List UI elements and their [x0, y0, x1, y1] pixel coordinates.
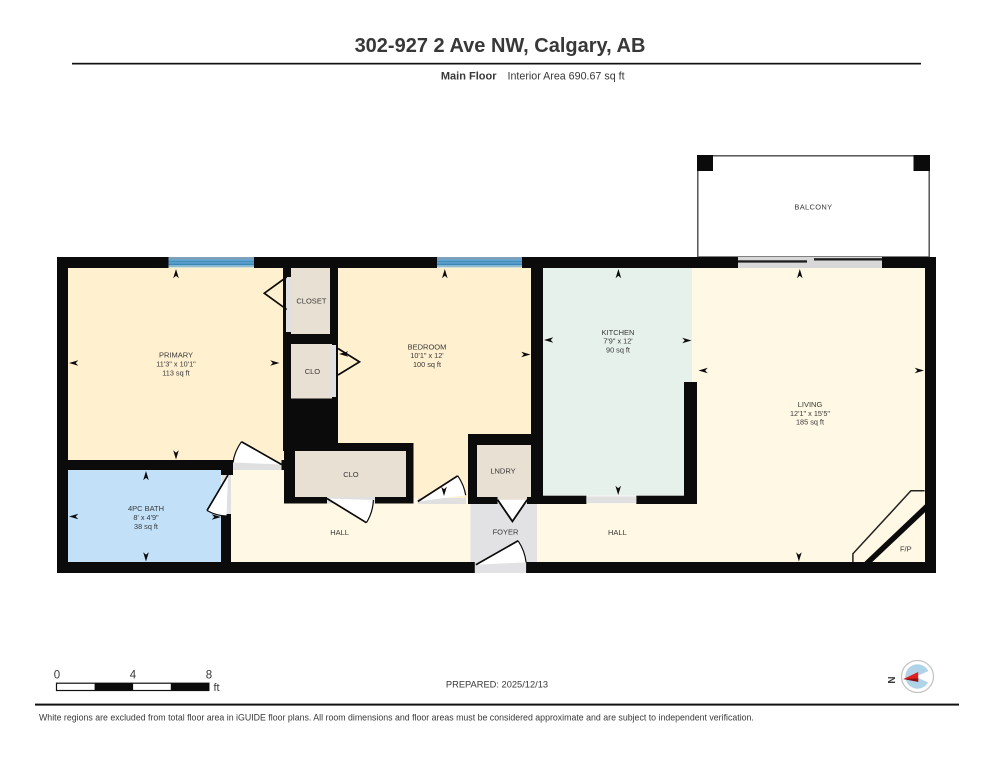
svg-text:PRIMARY: PRIMARY: [159, 351, 193, 360]
svg-text:10'1" x 12': 10'1" x 12': [410, 351, 444, 360]
svg-text:302-927 2 Ave NW, Calgary, AB: 302-927 2 Ave NW, Calgary, AB: [355, 35, 646, 57]
svg-text:N: N: [887, 676, 898, 683]
svg-text:0: 0: [54, 670, 60, 682]
svg-text:Main Floor: Main Floor: [441, 71, 497, 83]
svg-text:KITCHEN: KITCHEN: [602, 328, 635, 337]
svg-text:11'3" x 10'1": 11'3" x 10'1": [156, 359, 196, 368]
svg-text:White regions are excluded fro: White regions are excluded from total fl…: [39, 713, 754, 723]
svg-text:F/P: F/P: [900, 545, 912, 554]
svg-text:12'1" x 15'5": 12'1" x 15'5": [790, 409, 830, 418]
svg-text:ft: ft: [214, 682, 220, 694]
svg-text:Interior Area 690.67 sq ft: Interior Area 690.67 sq ft: [508, 71, 625, 83]
svg-text:113 sq ft: 113 sq ft: [162, 368, 189, 377]
svg-text:CLOSET: CLOSET: [296, 297, 326, 306]
svg-text:8: 8: [206, 670, 212, 682]
svg-text:8' x 4'9": 8' x 4'9": [133, 513, 159, 522]
svg-text:185 sq ft: 185 sq ft: [796, 418, 824, 427]
svg-text:FOYER: FOYER: [493, 528, 519, 537]
svg-text:BALCONY: BALCONY: [794, 203, 832, 212]
svg-text:4PC BATH: 4PC BATH: [128, 504, 164, 513]
svg-text:CLO: CLO: [305, 367, 321, 376]
svg-text:LNDRY: LNDRY: [490, 466, 515, 475]
svg-text:4: 4: [130, 670, 137, 682]
svg-text:BEDROOM: BEDROOM: [408, 342, 447, 351]
svg-text:CLO: CLO: [343, 470, 359, 479]
svg-text:100 sq ft: 100 sq ft: [413, 360, 441, 369]
svg-text:38 sq ft: 38 sq ft: [134, 522, 158, 531]
svg-text:7'9" x 12': 7'9" x 12': [603, 337, 633, 346]
svg-text:90 sq ft: 90 sq ft: [606, 346, 630, 355]
svg-text:PREPARED: 2025/12/13: PREPARED: 2025/12/13: [446, 680, 548, 690]
svg-text:LIVING: LIVING: [798, 400, 823, 409]
svg-text:HALL: HALL: [608, 528, 627, 537]
svg-text:HALL: HALL: [330, 528, 349, 537]
